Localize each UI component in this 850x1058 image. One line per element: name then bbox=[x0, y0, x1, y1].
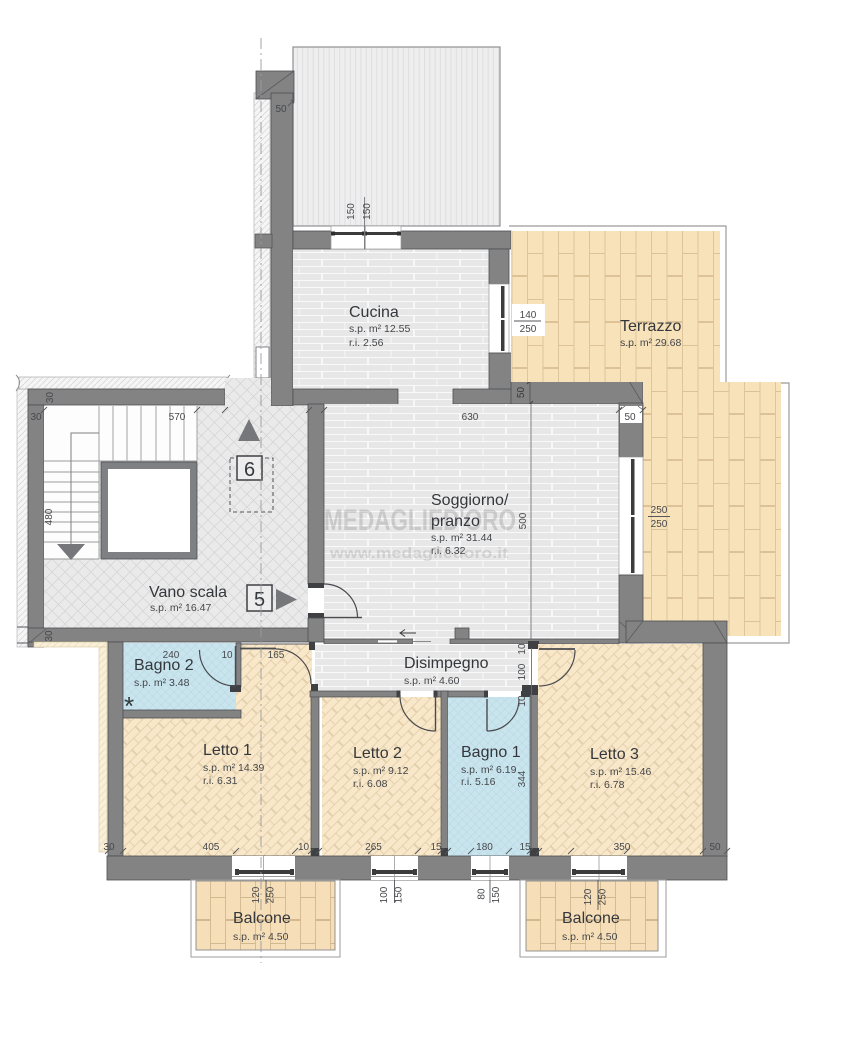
svg-text:265: 265 bbox=[365, 842, 382, 853]
svg-text:180: 180 bbox=[476, 842, 493, 853]
svg-text:5: 5 bbox=[254, 589, 265, 611]
svg-text:s.p. m² 15.46: s.p. m² 15.46 bbox=[590, 766, 651, 778]
svg-text:r.i. 6.32: r.i. 6.32 bbox=[431, 545, 466, 557]
svg-text:Letto 1: Letto 1 bbox=[203, 742, 252, 759]
svg-text:s.p. m² 12.55: s.p. m² 12.55 bbox=[349, 323, 410, 335]
svg-text:Vano scala: Vano scala bbox=[149, 584, 227, 601]
svg-text:480: 480 bbox=[44, 508, 55, 525]
svg-text:150: 150 bbox=[491, 886, 502, 903]
svg-text:s.p. m² 14.39: s.p. m² 14.39 bbox=[203, 762, 264, 774]
svg-text:Letto 2: Letto 2 bbox=[353, 745, 402, 762]
svg-text:Disimpegno: Disimpegno bbox=[404, 655, 489, 672]
svg-text:250: 250 bbox=[598, 888, 609, 905]
svg-text:s.p. m² 16.47: s.p. m² 16.47 bbox=[150, 602, 211, 614]
svg-text:165: 165 bbox=[268, 650, 285, 661]
svg-text:350: 350 bbox=[614, 842, 631, 853]
svg-text:10: 10 bbox=[221, 650, 233, 661]
svg-text:r.i. 2.56: r.i. 2.56 bbox=[349, 337, 384, 349]
svg-text:30: 30 bbox=[45, 392, 56, 404]
svg-text:570: 570 bbox=[169, 412, 186, 423]
svg-text:6: 6 bbox=[244, 459, 255, 481]
svg-text:405: 405 bbox=[203, 842, 220, 853]
svg-text:Balcone: Balcone bbox=[233, 910, 291, 927]
svg-text:100: 100 bbox=[517, 663, 528, 680]
svg-text:250: 250 bbox=[651, 505, 668, 516]
svg-text:150: 150 bbox=[346, 203, 357, 220]
svg-text:100: 100 bbox=[379, 886, 390, 903]
svg-text:140: 140 bbox=[520, 310, 537, 321]
svg-text:r.i. 6.08: r.i. 6.08 bbox=[353, 778, 388, 790]
svg-text:30: 30 bbox=[30, 412, 42, 423]
svg-text:10: 10 bbox=[298, 842, 310, 853]
svg-text:150: 150 bbox=[362, 203, 373, 220]
svg-text:s.p. m² 29.68: s.p. m² 29.68 bbox=[620, 337, 681, 349]
svg-text:r.i. 5.16: r.i. 5.16 bbox=[461, 776, 496, 788]
svg-text:250: 250 bbox=[651, 519, 668, 530]
svg-text:500: 500 bbox=[518, 512, 529, 529]
svg-text:r.i. 6.78: r.i. 6.78 bbox=[590, 779, 625, 791]
svg-text:50: 50 bbox=[516, 387, 527, 399]
svg-text:s.p. m² 6.19: s.p. m² 6.19 bbox=[461, 764, 517, 776]
svg-text:s.p. m² 4.60: s.p. m² 4.60 bbox=[404, 675, 460, 687]
svg-text:80: 80 bbox=[477, 888, 488, 900]
svg-text:*: * bbox=[124, 691, 134, 721]
svg-text:50: 50 bbox=[275, 104, 287, 115]
svg-text:Letto 3: Letto 3 bbox=[590, 746, 639, 763]
svg-text:150: 150 bbox=[394, 886, 405, 903]
svg-text:Terrazzo: Terrazzo bbox=[620, 318, 681, 335]
svg-text:250: 250 bbox=[266, 886, 277, 903]
svg-text:344: 344 bbox=[517, 770, 528, 787]
svg-text:www.medagliedoro.it: www.medagliedoro.it bbox=[329, 545, 508, 562]
svg-text:30: 30 bbox=[44, 630, 55, 642]
svg-text:s.p. m² 3.48: s.p. m² 3.48 bbox=[134, 677, 190, 689]
svg-text:240: 240 bbox=[163, 650, 180, 661]
svg-text:s.p. m² 31.44: s.p. m² 31.44 bbox=[431, 532, 492, 544]
svg-text:50: 50 bbox=[709, 842, 721, 853]
svg-text:Soggiorno/: Soggiorno/ bbox=[431, 492, 509, 509]
svg-text:s.p. m² 4.50: s.p. m² 4.50 bbox=[562, 931, 618, 943]
svg-text:120: 120 bbox=[251, 886, 262, 903]
svg-text:120: 120 bbox=[583, 888, 594, 905]
svg-text:Bagno 1: Bagno 1 bbox=[461, 744, 521, 761]
svg-text:10: 10 bbox=[517, 643, 528, 655]
svg-text:10: 10 bbox=[517, 695, 528, 707]
svg-text:250: 250 bbox=[520, 324, 537, 335]
svg-text:pranzo: pranzo bbox=[431, 513, 480, 530]
svg-text:Balcone: Balcone bbox=[562, 910, 620, 927]
svg-text:r.i. 6.31: r.i. 6.31 bbox=[203, 775, 238, 787]
svg-text:50: 50 bbox=[624, 412, 636, 423]
svg-text:Cucina: Cucina bbox=[349, 304, 399, 321]
svg-text:30: 30 bbox=[103, 842, 115, 853]
svg-text:s.p. m² 9.12: s.p. m² 9.12 bbox=[353, 765, 409, 777]
svg-text:630: 630 bbox=[462, 412, 479, 423]
